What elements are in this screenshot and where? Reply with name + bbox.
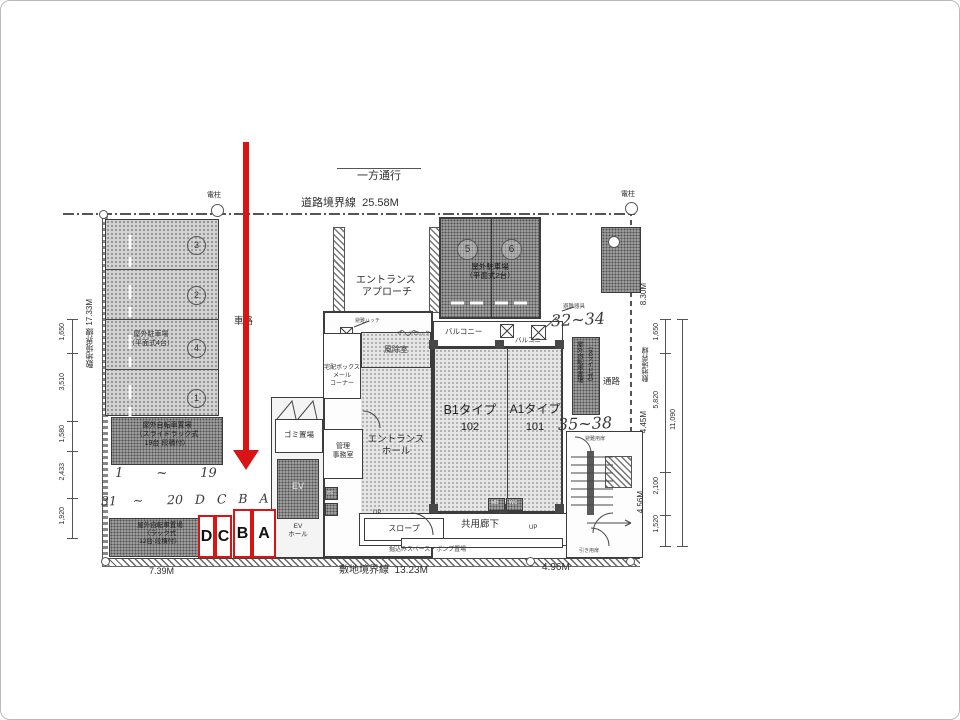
highlight-stall-a: A	[252, 509, 276, 558]
linework-overlay	[1, 1, 959, 719]
site-plan-page: 一方通行 道路境界線 25.58M 電柱 電柱 3 2 4 1 屋外駐車場 （平…	[0, 0, 960, 720]
highlight-stall-d: D	[198, 515, 215, 558]
highlight-arrow-shaft	[243, 142, 249, 450]
highlight-arrow-head	[233, 450, 259, 470]
highlight-stall-b: B	[233, 509, 252, 558]
highlight-stall-c: C	[215, 515, 232, 558]
